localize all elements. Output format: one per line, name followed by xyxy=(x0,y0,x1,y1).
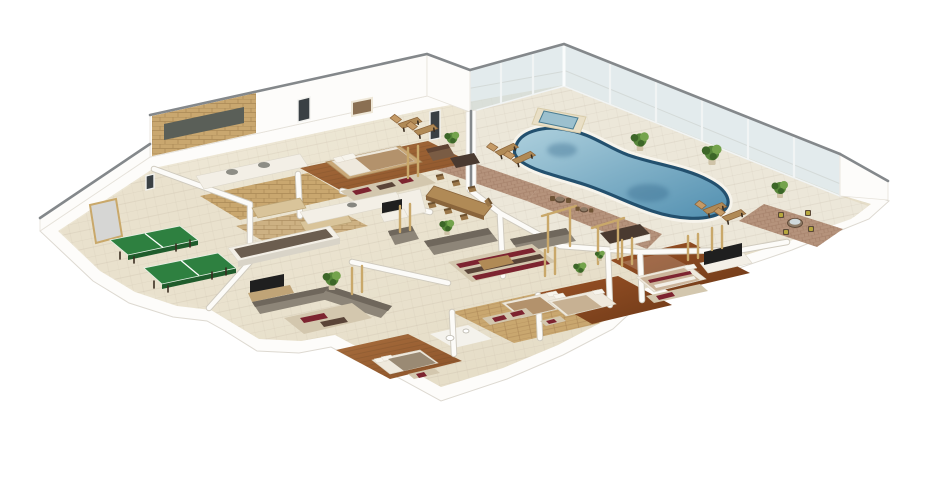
sink xyxy=(258,162,270,168)
island-sink xyxy=(347,203,357,208)
pool-shadow-2 xyxy=(627,184,669,202)
floorplan-canvas xyxy=(0,0,950,500)
window xyxy=(146,174,154,190)
games-room-door xyxy=(90,199,122,243)
floorplan-render xyxy=(0,0,950,500)
window xyxy=(298,97,310,122)
wall-picture xyxy=(352,98,372,116)
sink xyxy=(226,169,238,175)
pool-shadow-1 xyxy=(547,143,577,157)
basin xyxy=(463,329,469,333)
toilet xyxy=(446,335,454,340)
